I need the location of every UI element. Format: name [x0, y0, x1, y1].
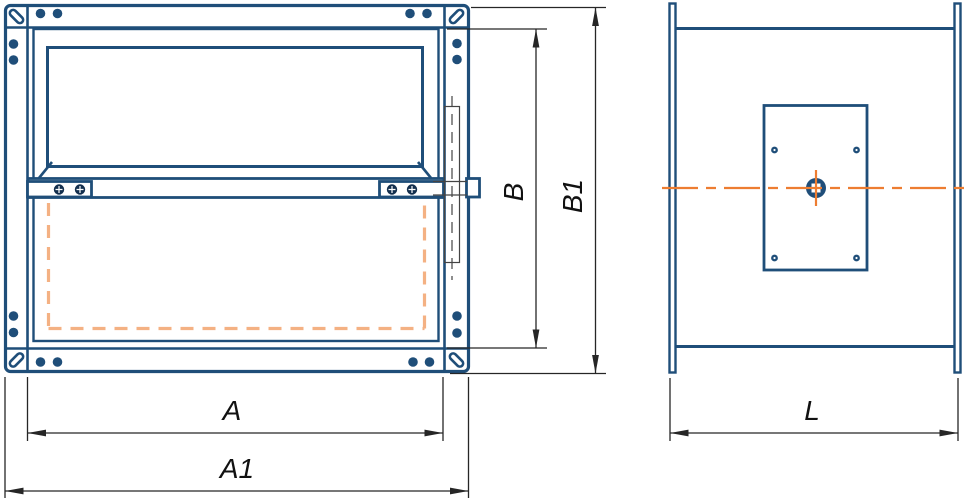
flange-hole — [9, 55, 19, 65]
flange-hole — [9, 39, 19, 49]
flange-hole — [452, 55, 462, 65]
plate-hole — [771, 255, 778, 262]
dim-label-B1: B1 — [557, 179, 588, 213]
drawing-canvas: A A1 B B1 L — [0, 0, 974, 504]
flange-hole — [36, 9, 46, 19]
dim-label-A1: A1 — [218, 453, 254, 484]
plate-hole — [853, 255, 860, 262]
flange-hole — [452, 311, 462, 321]
arrow-icon — [533, 29, 540, 48]
flange-hole — [452, 39, 462, 49]
arrow-icon — [533, 330, 540, 349]
arrow-icon — [940, 430, 959, 437]
screw-icon — [54, 184, 64, 194]
flange-hole — [452, 328, 462, 338]
arrow-icon — [592, 355, 599, 374]
dim-label-A: A — [221, 395, 242, 426]
plate-hole — [771, 147, 778, 154]
flange-hole — [422, 9, 432, 19]
screw-icon — [75, 184, 85, 194]
flange-hole — [53, 9, 63, 19]
flange-hole — [425, 357, 435, 367]
arrow-icon — [670, 430, 689, 437]
centerline — [662, 170, 970, 206]
damper-blade — [48, 48, 423, 167]
plate-hole — [853, 147, 860, 154]
flange-hole — [53, 357, 63, 367]
screw-icon — [387, 184, 397, 194]
flange-hole — [9, 328, 19, 338]
dim-label-L: L — [804, 395, 820, 426]
screw-icon — [407, 184, 417, 194]
dim-label-B: B — [498, 183, 529, 202]
arrow-icon — [28, 430, 47, 437]
arrow-icon — [592, 8, 599, 27]
flange-hole — [405, 9, 415, 19]
flange-hole — [408, 357, 418, 367]
flange-hole — [9, 311, 19, 321]
arrow-icon — [5, 488, 24, 495]
arrow-icon — [450, 488, 469, 495]
flange-hole — [36, 357, 46, 367]
arrow-icon — [425, 430, 444, 437]
shaft-end-cap — [467, 179, 480, 198]
